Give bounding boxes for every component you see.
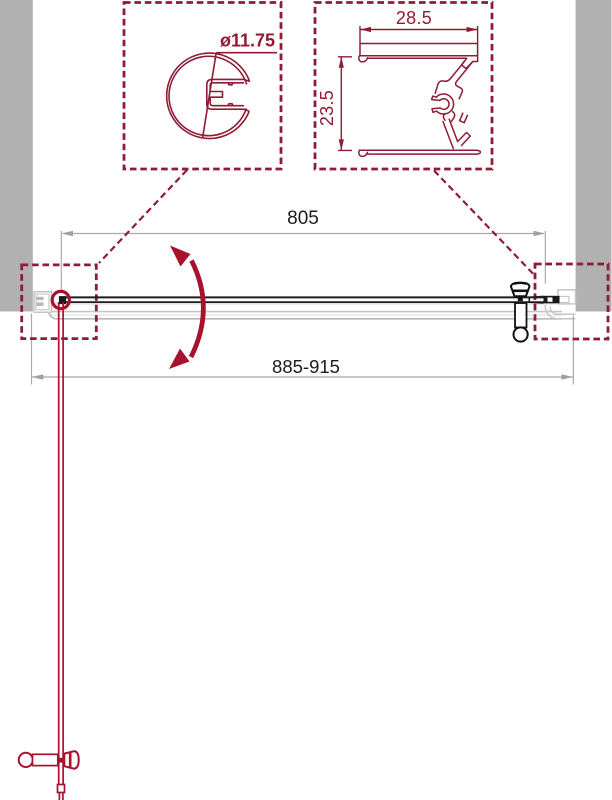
svg-text:28.5: 28.5: [396, 8, 432, 28]
svg-text:23.5: 23.5: [317, 90, 337, 126]
svg-text:805: 805: [287, 208, 319, 229]
svg-text:ø11.75: ø11.75: [220, 31, 275, 51]
svg-text:885-915: 885-915: [272, 356, 340, 377]
